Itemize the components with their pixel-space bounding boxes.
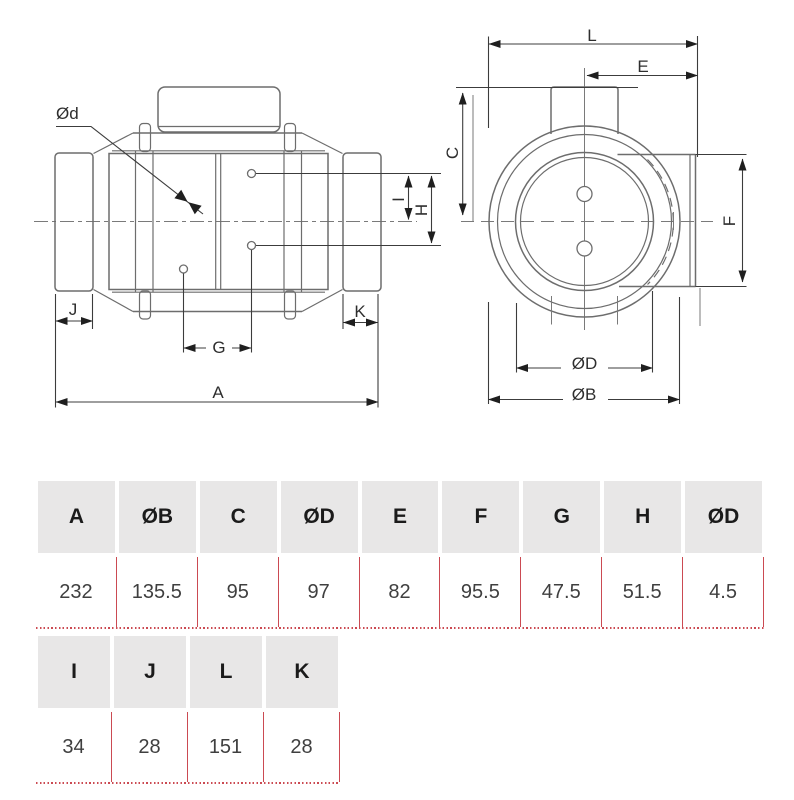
dimensions-table-2: I J L K 34 28 151 28 xyxy=(36,636,340,784)
dim-label-ob: ØB xyxy=(572,385,597,404)
front-view-drawing: L E C F ØD ØB xyxy=(443,26,747,404)
value-cell: 82 xyxy=(360,557,441,627)
dim-label-f: F xyxy=(720,216,739,226)
header-cell: E xyxy=(362,481,439,553)
header-cell: J xyxy=(114,636,186,708)
value-cell: 34 xyxy=(36,712,112,782)
od-leader-arrow-icon xyxy=(174,190,187,202)
value-cell: 28 xyxy=(264,712,340,782)
dim-label-j: J xyxy=(69,300,78,319)
value-cell: 95.5 xyxy=(440,557,521,627)
header-cell: I xyxy=(38,636,110,708)
header-cell: A xyxy=(38,481,115,553)
table1-value-row: 232 135.5 95 97 82 95.5 47.5 51.5 4.5 xyxy=(36,557,764,627)
dim-label-e: E xyxy=(637,57,648,76)
table2-value-row: 34 28 151 28 xyxy=(36,712,340,782)
header-cell: ØD xyxy=(685,481,762,553)
fan-dimension-drawing: Ød J K G A I H xyxy=(0,0,794,458)
dim-label-c: C xyxy=(443,147,462,159)
dim-label-a: A xyxy=(212,383,224,402)
side-view-body-outline xyxy=(55,133,381,312)
header-cell: C xyxy=(200,481,277,553)
value-cell: 95 xyxy=(198,557,279,627)
dim-label-od: Ød xyxy=(56,104,79,123)
header-cell: H xyxy=(604,481,681,553)
header-cell: ØD xyxy=(281,481,358,553)
table1-header-row: A ØB C ØD E F G H ØD xyxy=(36,481,764,553)
value-cell: 232 xyxy=(36,557,117,627)
front-view-extension-lines xyxy=(456,36,747,404)
dimension-tables: A ØB C ØD E F G H ØD 232 135.5 95 97 82 … xyxy=(36,481,794,784)
value-cell: 28 xyxy=(112,712,188,782)
od-leader-arrow-icon xyxy=(188,202,201,214)
side-view-dimension-lines xyxy=(56,127,432,403)
header-cell: G xyxy=(523,481,600,553)
od-leader-line xyxy=(56,127,203,215)
header-cell: ØB xyxy=(119,481,196,553)
header-cell: F xyxy=(442,481,519,553)
value-cell: 51.5 xyxy=(602,557,683,627)
value-cell: 135.5 xyxy=(117,557,198,627)
value-cell: 151 xyxy=(188,712,264,782)
dim-label-h: H xyxy=(412,204,431,216)
dim-label-k: K xyxy=(354,302,366,321)
header-cell: K xyxy=(266,636,338,708)
dim-label-g: G xyxy=(212,338,225,357)
value-cell: 4.5 xyxy=(683,557,764,627)
value-cell: 97 xyxy=(279,557,360,627)
dim-label-i: I xyxy=(389,197,408,202)
table1-dotted-divider xyxy=(36,627,764,629)
dim-label-l: L xyxy=(587,26,596,45)
dim-label-od-inner: ØD xyxy=(572,354,598,373)
junction-box xyxy=(158,87,280,132)
dimensions-table-1: A ØB C ØD E F G H ØD 232 135.5 95 97 82 … xyxy=(36,481,764,629)
table2-header-row: I J L K xyxy=(36,636,340,708)
side-view-extension-lines xyxy=(56,174,442,408)
header-cell: L xyxy=(190,636,262,708)
side-view-drawing: Ød J K G A I H xyxy=(34,87,441,408)
value-cell: 47.5 xyxy=(521,557,602,627)
front-view-body-outline xyxy=(489,87,700,326)
table2-dotted-divider xyxy=(36,782,340,784)
